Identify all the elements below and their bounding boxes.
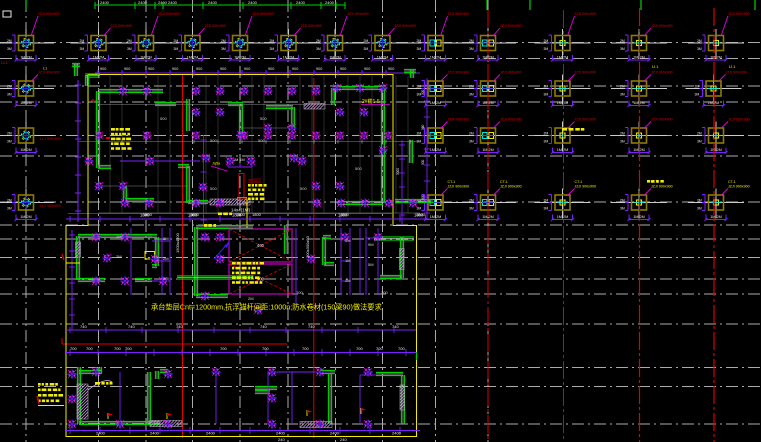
svg-text:900: 900 [316,67,322,71]
svg-text:700: 700 [376,346,383,351]
svg-text:300: 300 [421,159,425,165]
svg-text:1M: 1M [345,258,351,263]
svg-text:JZJI 900x900: JZJI 900x900 [158,12,180,16]
svg-text:1M 2M: 1M 2M [329,56,341,60]
svg-text:1M 2M: 1M 2M [430,101,442,105]
svg-text:JZJI 900x900: JZJI 900x900 [301,24,323,28]
svg-text:3M: 3M [417,47,422,51]
svg-text:740: 740 [260,324,267,329]
svg-text:2#楼1-5: 2#楼1-5 [362,98,380,105]
svg-text:2M: 2M [221,39,226,43]
svg-text:2M: 2M [417,39,422,43]
svg-text:2400: 2400 [330,431,340,436]
svg-text:700: 700 [296,290,303,295]
svg-text:700: 700 [356,346,363,351]
svg-text:JZJI 900x900: JZJI 900x900 [252,12,274,16]
svg-text:740: 740 [308,324,315,329]
svg-text:1800: 1800 [143,212,153,217]
svg-text:JZJI 900x900: JZJI 900x900 [500,24,522,28]
svg-text:900: 900 [172,67,178,71]
svg-text:IJ.1: IJ.1 [652,64,659,69]
svg-text:CT-1: CT-1 [728,180,736,184]
svg-text:500: 500 [160,116,167,121]
svg-text:CT-1: CT-1 [575,180,583,184]
svg-text:2M: 2M [544,132,549,136]
svg-text:400: 400 [257,243,265,248]
svg-text:300: 300 [421,89,425,95]
svg-text:2M: 2M [7,199,12,203]
svg-text:700: 700 [262,346,269,351]
svg-text:1M 2M: 1M 2M [20,101,32,105]
svg-text:JZJI 900x900: JZJI 900x900 [395,24,417,28]
svg-text:900: 900 [340,67,346,71]
svg-text:700: 700 [302,346,309,351]
svg-text:300x300x90: 300x300x90 [305,235,310,258]
svg-text:2M: 2M [620,132,625,136]
svg-text:LL1: LL1 [1,60,9,65]
svg-text:2M: 2M [163,276,169,281]
svg-text:2M: 2M [417,132,422,136]
svg-text:2M: 2M [417,85,422,89]
svg-text:2400: 2400 [100,0,110,5]
svg-text:3M: 3M [7,93,12,97]
svg-text:300: 300 [421,194,425,200]
svg-text:1M 2M: 1M 2M [20,215,32,219]
svg-text:700: 700 [220,346,227,351]
svg-text:JZJI 900x900: JZJI 900x900 [448,12,470,16]
svg-text:3M: 3M [620,207,625,211]
svg-text:2M: 2M [620,199,625,203]
svg-text:2400: 2400 [325,0,335,5]
svg-text:LL1 900x900: LL1 900x900 [40,137,61,141]
svg-text:JZJI 900x900: JZJI 900x900 [575,185,597,189]
svg-text:3M: 3M [469,207,474,211]
svg-text:3M: 3M [544,47,549,51]
svg-text:IJ.1: IJ.1 [729,64,736,69]
svg-text:2M: 2M [270,39,275,43]
svg-text:3M: 3M [7,140,12,144]
svg-text:承台垫层Cnt=1200mm,抗浮锚杆间距:1000n;防水: 承台垫层Cnt=1200mm,抗浮锚杆间距:1000n;防水卷材(150梁90)… [151,303,382,312]
svg-text:3M: 3M [7,207,12,211]
svg-text:900: 900 [244,67,250,71]
svg-text:3M: 3M [469,47,474,51]
svg-text:300: 300 [421,124,425,130]
svg-text:JZJI 900x900: JZJI 900x900 [500,185,522,189]
svg-text:2400: 2400 [158,0,168,5]
svg-text:900: 900 [100,67,106,71]
svg-text:3M: 3M [620,93,625,97]
svg-text:JZJI 900x900: JZJI 900x900 [347,12,369,16]
svg-text:3M: 3M [127,47,132,51]
svg-text:2400: 2400 [206,431,216,436]
svg-text:2M: 2M [364,39,369,43]
svg-text:5M: 5M [345,238,351,243]
svg-text:3M: 3M [80,47,85,51]
svg-text:1M 2M: 1M 2M [140,56,152,60]
svg-text:JZJI 900x900: JZJI 900x900 [651,118,673,122]
svg-text:1M 2M: 1M 2M [710,148,722,152]
svg-text:2M: 2M [697,39,702,43]
svg-text:900: 900 [148,67,154,71]
svg-text:3M: 3M [697,140,702,144]
svg-text:2M: 2M [544,85,549,89]
svg-text:2M: 2M [116,254,122,259]
svg-text:1M 2M: 1M 2M [557,101,569,105]
svg-text:2M: 2M [7,85,12,89]
svg-text:3M: 3M [174,47,179,51]
svg-text:1M 2M: 1M 2M [557,56,569,60]
svg-text:9M: 9M [368,242,374,247]
svg-text:1M 1M: 1M 1M [233,158,245,162]
svg-text:500: 500 [210,186,217,191]
svg-text:3M: 3M [620,47,625,51]
svg-text:1800: 1800 [340,212,350,217]
svg-text:2M: 2M [469,85,474,89]
svg-text:3M: 3M [544,207,549,211]
svg-text:2M: 2M [116,234,122,239]
svg-text:900: 900 [364,67,370,71]
svg-text:JZJI 900x900: JZJI 900x900 [38,71,60,75]
svg-text:JZJI 900x900: JZJI 900x900 [651,71,673,75]
svg-text:5M: 5M [368,262,374,267]
svg-text:2M: 2M [544,199,549,203]
svg-text:3M: 3M [695,93,700,97]
svg-text:2M: 2M [7,132,12,136]
svg-text:JZJI 900x900: JZJI 900x900 [726,71,748,75]
svg-text:500: 500 [258,138,265,143]
svg-text:2M: 2M [697,132,702,136]
svg-text:2M: 2M [469,132,474,136]
svg-text:JZJI 900x900: JZJI 900x900 [448,185,470,189]
svg-text:2M: 2M [316,39,321,43]
svg-text:3M: 3M [417,207,422,211]
svg-text:JZJI 900x900: JZJI 900x900 [575,71,597,75]
svg-text:1M 2M: 1M 2M [234,56,246,60]
svg-text:JZJI 900x900: JZJI 900x900 [651,24,673,28]
svg-text:1M 2M: 1M 2M [283,56,295,60]
svg-text:1M 2M: 1M 2M [710,56,722,60]
svg-text:2400: 2400 [150,431,160,436]
svg-text:2M: 2M [163,236,169,241]
svg-text:1800: 1800 [190,212,200,217]
svg-text:2M: 2M [620,85,625,89]
svg-text:1800: 1800 [252,212,262,217]
svg-text:3M: 3M [364,47,369,51]
svg-text:JZJI 900x900: JZJI 900x900 [448,71,470,75]
svg-text:900: 900 [124,67,130,71]
svg-text:2M: 2M [163,256,169,261]
svg-text:500: 500 [300,186,307,191]
svg-text:1800: 1800 [236,212,246,217]
svg-text:JZJI 900x900: JZJI 900x900 [575,118,597,122]
svg-text:2M: 2M [345,278,351,283]
svg-text:3M: 3M [544,93,549,97]
svg-text:3M: 3M [270,47,275,51]
svg-text:3M: 3M [221,47,226,51]
svg-text:2400: 2400 [248,0,258,5]
svg-text:1M 2M: 1M 2M [430,56,442,60]
svg-text:JZJI 900x900: JZJI 900x900 [728,185,750,189]
svg-text:JZJI 900x900: JZJI 900x900 [500,118,522,122]
svg-text:500: 500 [210,138,217,143]
svg-text:500: 500 [260,116,267,121]
svg-text:2M: 2M [469,39,474,43]
svg-text:JZJI 900x900: JZJI 900x900 [38,12,60,16]
svg-text:2M: 2M [697,199,702,203]
svg-text:1M 2M: 1M 2M [187,56,199,60]
svg-text:1M 2M: 1M 2M [557,215,569,219]
svg-text:L1: L1 [43,67,47,71]
svg-text:CT-1: CT-1 [500,180,508,184]
svg-text:2400: 2400 [168,0,178,5]
svg-text:2M: 2M [695,85,700,89]
svg-text:2400: 2400 [392,431,402,436]
svg-text:3M: 3M [697,47,702,51]
svg-text:JZJI 900x900: JZJI 900x900 [728,118,750,122]
svg-text:3M: 3M [316,47,321,51]
svg-text:240: 240 [340,437,347,442]
svg-text:900: 900 [220,67,226,71]
svg-text:2400: 2400 [208,0,218,5]
svg-text:2M: 2M [127,39,132,43]
svg-text:740: 740 [128,324,135,329]
svg-text:900: 900 [268,67,274,71]
svg-text:JZJI 900x900: JZJI 900x900 [448,118,470,122]
svg-text:700: 700 [114,346,121,351]
svg-text:1M 2M: 1M 2M [430,215,442,219]
svg-text:700: 700 [381,290,388,295]
svg-text:900: 900 [388,67,394,71]
svg-text:1M 2M: 1M 2M [710,215,722,219]
svg-text:900: 900 [196,67,202,71]
svg-text:3M: 3M [697,207,702,211]
svg-text:500: 500 [355,166,362,171]
svg-text:1M 2M: 1M 2M [377,56,389,60]
svg-text:2M: 2M [620,39,625,43]
svg-text:JZJI 900x900: JZJI 900x900 [575,12,597,16]
svg-text:2M: 2M [174,39,179,43]
svg-text:JZJI 900x900: JZJI 900x900 [651,185,673,189]
svg-text:2400: 2400 [276,431,286,436]
svg-text:JZJI 900x900: JZJI 900x900 [728,12,750,16]
svg-text:700: 700 [398,346,405,351]
svg-text:1500x4500: 1500x4500 [175,232,180,253]
svg-text:3M: 3M [544,140,549,144]
svg-text:3000: 3000 [396,168,400,175]
svg-text:Jq5a: Jq5a [212,162,221,166]
svg-text:740: 740 [176,324,183,329]
svg-text:1M 2M: 1M 2M [20,56,32,60]
svg-text:2M: 2M [544,39,549,43]
svg-text:1M 2M: 1M 2M [20,148,32,152]
svg-text:加固区: 加固区 [248,178,262,185]
svg-text:2400: 2400 [138,0,148,5]
svg-text:2M: 2M [248,296,254,301]
svg-text:JZJI 900x900: JZJI 900x900 [111,24,133,28]
svg-text:700: 700 [86,346,93,351]
svg-text:3M: 3M [7,47,12,51]
svg-text:1M 2M: 1M 2M [557,148,569,152]
svg-text:JZJI 900x900: JZJI 900x900 [205,24,227,28]
svg-text:JZJI 900x900: JZJI 900x900 [500,71,522,75]
svg-text:3M: 3M [620,140,625,144]
svg-text:1800: 1800 [416,212,426,217]
svg-text:CT-1: CT-1 [448,180,456,184]
svg-text:2M: 2M [469,199,474,203]
svg-text:740: 740 [80,324,87,329]
svg-text:1M 2M: 1M 2M [93,56,105,60]
svg-text:240: 240 [278,437,285,442]
svg-text:1M 2M: 1M 2M [430,148,442,152]
svg-text:2400: 2400 [96,431,106,436]
svg-text:LL1 900x900: LL1 900x900 [40,204,61,208]
svg-text:700: 700 [125,346,132,351]
svg-text:3M: 3M [469,140,474,144]
svg-text:740: 740 [392,324,399,329]
svg-text:700: 700 [70,346,77,351]
svg-text:2M: 2M [80,39,85,43]
svg-text:3M: 3M [469,93,474,97]
svg-text:900: 900 [292,67,298,71]
svg-text:2400: 2400 [296,0,306,5]
svg-text:2M: 2M [7,39,12,43]
